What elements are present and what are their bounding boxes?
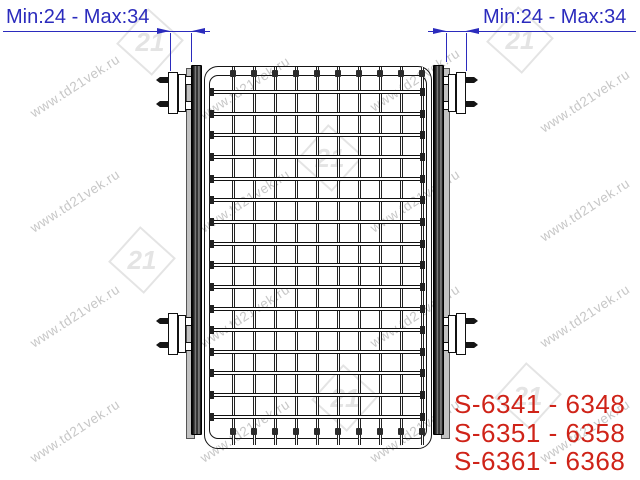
product-code-line: S-6341 - 6348 (454, 390, 625, 419)
wire-hook (377, 428, 383, 435)
mesh-vertical-wire (316, 67, 319, 445)
mesh-vertical-wire (379, 67, 382, 445)
mesh-horizontal-wire (209, 177, 425, 181)
wire-end-cap (420, 369, 425, 377)
wire-end-cap (420, 261, 425, 269)
bracket-slider (178, 315, 186, 353)
mounting-bracket-top-right (442, 72, 478, 112)
left-rail (191, 65, 202, 435)
wire-hook (314, 70, 320, 77)
mounting-bracket-top-left (156, 72, 192, 112)
technical-drawing-canvas: www.td21vek.ruwww.td21vek.ruwww.td21vek.… (0, 0, 640, 480)
wire-hook (272, 70, 278, 77)
screw-icon (156, 101, 169, 107)
mesh-horizontal-wire (209, 285, 425, 289)
mesh-horizontal-wire (209, 220, 425, 224)
bracket-plate (168, 313, 178, 355)
wire-hook (398, 70, 404, 77)
wire-end-cap (209, 131, 214, 139)
wire-end-cap (209, 110, 214, 118)
wire-hook (293, 70, 299, 77)
bracket-slider (448, 315, 456, 353)
screw-icon (465, 101, 478, 107)
wire-end-cap (209, 348, 214, 356)
wire-end-cap (420, 218, 425, 226)
mesh-horizontal-wire (209, 198, 425, 202)
wire-hook (293, 428, 299, 435)
mesh-horizontal-wire (209, 112, 425, 116)
bracket-plate (456, 313, 466, 355)
screw-icon (156, 77, 169, 83)
wire-end-cap (420, 240, 425, 248)
mesh-vertical-wire (358, 67, 361, 445)
mesh-horizontal-wire (209, 90, 425, 94)
mesh-horizontal-wire (209, 242, 425, 246)
wire-hook (377, 70, 383, 77)
right-rail (433, 65, 444, 435)
wire-hook (356, 428, 362, 435)
wire-hook (251, 70, 257, 77)
bracket-slider (448, 74, 456, 112)
mesh-horizontal-wire (209, 393, 425, 397)
mesh-vertical-wire (400, 67, 403, 445)
screw-icon (465, 77, 478, 83)
wire-hook (419, 70, 425, 77)
mesh-vertical-wire (253, 67, 256, 445)
bracket-slider (178, 74, 186, 112)
wire-end-cap (209, 196, 214, 204)
mesh-horizontal-wire (209, 350, 425, 354)
mounting-bracket-bottom-left (156, 313, 192, 353)
mesh-vertical-wire (295, 67, 298, 445)
product-code-line: S-6361 - 6368 (454, 447, 625, 476)
mesh-horizontal-wire (209, 133, 425, 137)
wire-end-cap (209, 391, 214, 399)
wire-end-cap (420, 196, 425, 204)
mesh-vertical-wire (232, 67, 235, 445)
wire-hook (251, 428, 257, 435)
wire-hook (272, 428, 278, 435)
mesh-horizontal-wire (209, 263, 425, 267)
wire-end-cap (420, 88, 425, 96)
wire-end-cap (209, 283, 214, 291)
wire-hook (335, 428, 341, 435)
mesh-vertical-wire (274, 67, 277, 445)
wire-end-cap (209, 326, 214, 334)
wire-hook (335, 70, 341, 77)
product-code-line: S-6351 - 6358 (454, 419, 625, 448)
product-codes: S-6341 - 6348 S-6351 - 6358 S-6361 - 636… (454, 390, 625, 476)
bracket-plate (456, 72, 466, 114)
wire-end-cap (209, 153, 214, 161)
bracket-plate (168, 72, 178, 114)
wire-end-cap (420, 305, 425, 313)
screw-icon (465, 318, 478, 324)
wire-hook (314, 428, 320, 435)
mounting-bracket-bottom-right (442, 313, 478, 353)
mesh-vertical-wire (421, 67, 424, 445)
wire-end-cap (209, 261, 214, 269)
wire-end-cap (209, 240, 214, 248)
wire-end-cap (209, 175, 214, 183)
wire-end-cap (420, 175, 425, 183)
wire-hook (398, 428, 404, 435)
wire-hook (419, 428, 425, 435)
mesh-vertical-wire (337, 67, 340, 445)
wire-end-cap (420, 413, 425, 421)
wire-end-cap (209, 218, 214, 226)
mesh-horizontal-wire (209, 415, 425, 419)
wire-end-cap (209, 413, 214, 421)
wire-end-cap (420, 131, 425, 139)
mesh-horizontal-wire (209, 307, 425, 311)
mesh-horizontal-wire (209, 371, 425, 375)
wire-end-cap (420, 153, 425, 161)
wire-end-cap (420, 326, 425, 334)
wire-hook (230, 428, 236, 435)
mesh-horizontal-wire (209, 155, 425, 159)
wire-end-cap (209, 305, 214, 313)
wire-end-cap (420, 283, 425, 291)
wire-end-cap (420, 391, 425, 399)
screw-icon (156, 342, 169, 348)
wire-end-cap (420, 110, 425, 118)
screw-icon (156, 318, 169, 324)
wire-hook (230, 70, 236, 77)
wire-end-cap (420, 348, 425, 356)
wire-end-cap (209, 369, 214, 377)
screw-icon (465, 342, 478, 348)
mesh-horizontal-wire (209, 328, 425, 332)
wire-end-cap (209, 88, 214, 96)
wire-hook (356, 70, 362, 77)
